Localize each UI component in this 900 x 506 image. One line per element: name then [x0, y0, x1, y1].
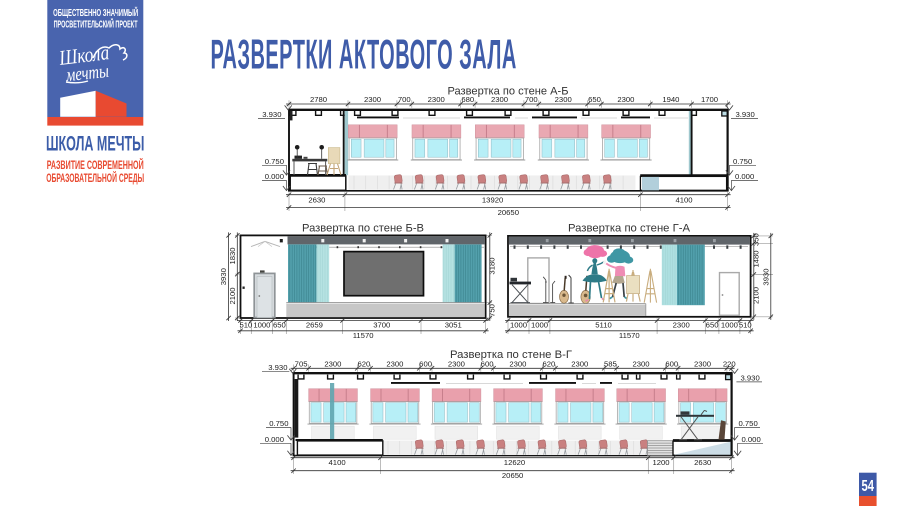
svg-text:600: 600	[419, 359, 432, 368]
svg-text:1940: 1940	[662, 95, 679, 104]
svg-text:2300: 2300	[509, 359, 526, 368]
svg-text:620: 620	[542, 359, 555, 368]
svg-text:0.750: 0.750	[733, 157, 752, 166]
svg-text:2630: 2630	[694, 458, 711, 467]
svg-text:РАЗВЕРТКИ АКТОВОГО ЗАЛА: РАЗВЕРТКИ АКТОВОГО ЗАЛА	[211, 30, 517, 77]
svg-text:3.930: 3.930	[268, 363, 287, 372]
svg-text:2100: 2100	[751, 287, 760, 304]
svg-text:2300: 2300	[617, 95, 634, 104]
svg-text:20650: 20650	[502, 471, 523, 480]
svg-text:1000: 1000	[253, 321, 270, 330]
svg-text:2300: 2300	[324, 359, 341, 368]
svg-text:2300: 2300	[694, 359, 711, 368]
svg-text:2300: 2300	[491, 95, 508, 104]
svg-text:510: 510	[239, 321, 252, 330]
svg-text:0.750: 0.750	[739, 419, 758, 428]
svg-text:3930: 3930	[219, 268, 228, 285]
svg-text:220: 220	[723, 359, 736, 368]
svg-text:Развертка по стене Г-А: Развертка по стене Г-А	[568, 223, 691, 235]
svg-text:Развертка по стене Б-В: Развертка по стене Б-В	[302, 223, 424, 235]
svg-text:0.750: 0.750	[269, 419, 288, 428]
svg-text:5110: 5110	[595, 321, 612, 330]
svg-text:3051: 3051	[445, 321, 462, 330]
svg-text:1200: 1200	[652, 458, 669, 467]
svg-text:2300: 2300	[428, 95, 445, 104]
svg-text:585: 585	[604, 359, 617, 368]
svg-text:54: 54	[862, 478, 875, 495]
svg-text:650: 650	[588, 95, 601, 104]
svg-text:510: 510	[739, 321, 752, 330]
svg-text:2300: 2300	[448, 359, 465, 368]
svg-text:600: 600	[665, 359, 678, 368]
svg-text:2300: 2300	[364, 95, 381, 104]
svg-text:12620: 12620	[504, 458, 525, 467]
svg-text:2100: 2100	[228, 287, 237, 304]
svg-text:680: 680	[461, 95, 474, 104]
svg-text:РАЗВИТИЕ СОВРЕМЕННОЙ: РАЗВИТИЕ СОВРЕМЕННОЙ	[47, 159, 144, 172]
svg-text:2659: 2659	[306, 321, 323, 330]
svg-text:700: 700	[398, 95, 411, 104]
svg-text:705: 705	[295, 359, 308, 368]
svg-text:3180: 3180	[488, 257, 497, 274]
svg-text:750: 750	[488, 304, 497, 317]
svg-text:0.000: 0.000	[265, 172, 284, 181]
svg-text:2300: 2300	[673, 321, 690, 330]
svg-text:0.000: 0.000	[265, 435, 284, 444]
svg-text:11570: 11570	[353, 331, 374, 340]
svg-text:2300: 2300	[571, 359, 588, 368]
svg-text:20650: 20650	[498, 208, 519, 217]
svg-text:650: 650	[273, 321, 286, 330]
svg-text:0.000: 0.000	[735, 172, 754, 181]
svg-text:ШКОЛА МЕЧТЫ: ШКОЛА МЕЧТЫ	[46, 132, 145, 156]
svg-text:1830: 1830	[228, 247, 237, 264]
svg-text:1000: 1000	[721, 321, 738, 330]
svg-text:ПРОСВЕТИТЕЛЬСКИЙ ПРОЕКТ: ПРОСВЕТИТЕЛЬСКИЙ ПРОЕКТ	[54, 17, 138, 30]
svg-text:700: 700	[525, 95, 538, 104]
svg-text:3.930: 3.930	[736, 110, 755, 119]
svg-text:4100: 4100	[675, 195, 692, 204]
svg-text:1000: 1000	[510, 321, 527, 330]
svg-text:600: 600	[481, 359, 494, 368]
svg-text:1480: 1480	[751, 250, 760, 267]
svg-text:1000: 1000	[531, 321, 548, 330]
svg-text:620: 620	[357, 359, 370, 368]
svg-text:3.930: 3.930	[741, 374, 760, 383]
svg-text:2300: 2300	[555, 95, 572, 104]
svg-text:2300: 2300	[632, 359, 649, 368]
svg-text:13920: 13920	[482, 195, 503, 204]
svg-text:3930: 3930	[761, 268, 770, 285]
svg-text:2630: 2630	[308, 195, 325, 204]
svg-text:1700: 1700	[701, 95, 718, 104]
svg-text:2780: 2780	[310, 95, 327, 104]
svg-text:3700: 3700	[373, 321, 390, 330]
svg-text:2300: 2300	[386, 359, 403, 368]
svg-text:3.930: 3.930	[262, 110, 281, 119]
svg-text:ОБРАЗОВАТЕЛЬНОЙ СРЕДЫ: ОБРАЗОВАТЕЛЬНОЙ СРЕДЫ	[46, 172, 144, 185]
svg-text:650: 650	[706, 321, 719, 330]
svg-text:ОБЩЕСТВЕННО ЗНАЧИМЫЙ: ОБЩЕСТВЕННО ЗНАЧИМЫЙ	[53, 6, 138, 19]
svg-text:11570: 11570	[619, 331, 640, 340]
svg-text:4100: 4100	[329, 458, 346, 467]
svg-text:0.750: 0.750	[265, 157, 284, 166]
svg-text:350: 350	[751, 233, 760, 246]
svg-text:0.000: 0.000	[742, 435, 761, 444]
